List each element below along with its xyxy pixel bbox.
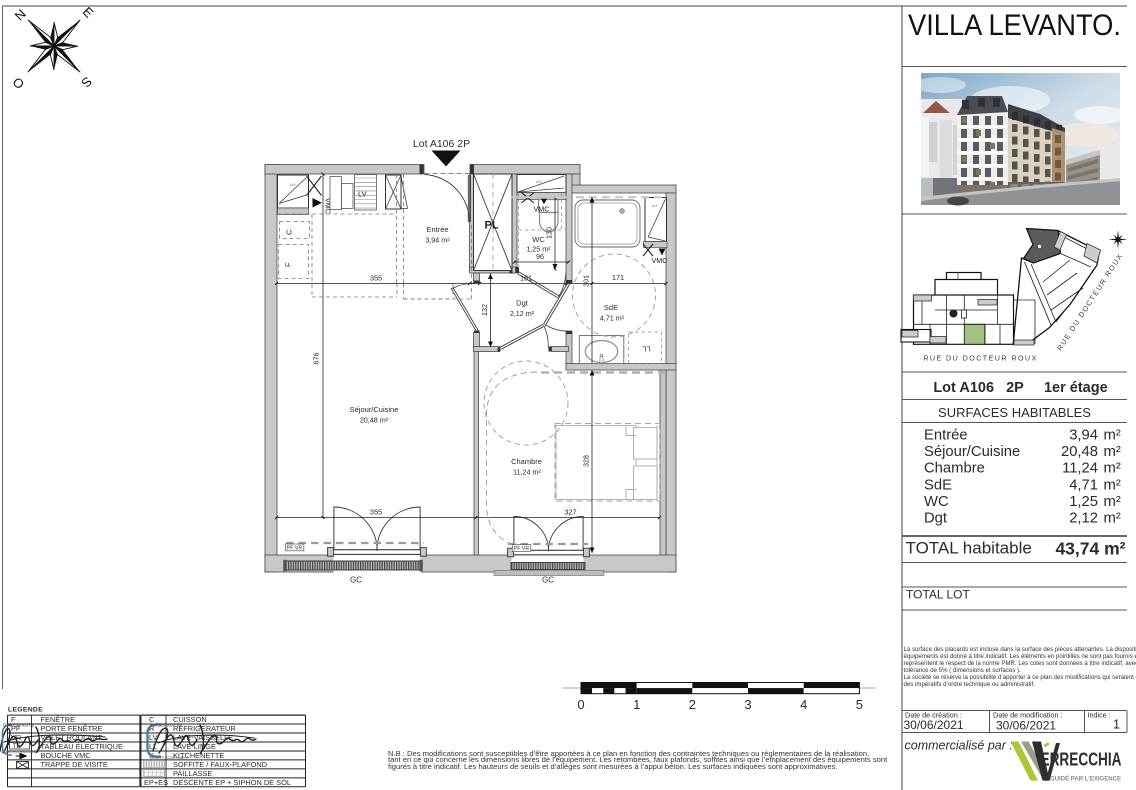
svg-text:m²: m² — [1104, 461, 1121, 477]
svg-text:LL: LL — [642, 345, 650, 354]
svg-text:RUE DU DOCTEUR ROUX: RUE DU DOCTEUR ROUX — [923, 354, 1037, 363]
svg-text:O: O — [9, 74, 27, 92]
svg-text:171: 171 — [612, 273, 624, 282]
svg-text:161: 161 — [520, 274, 532, 283]
svg-text:30/06/2021: 30/06/2021 — [904, 718, 964, 732]
svg-text:Lot A106 2P: Lot A106 2P — [413, 138, 470, 150]
svg-text:ERRECCHIA: ERRECCHIA — [1041, 749, 1122, 770]
svg-text:PL: PL — [485, 220, 499, 232]
svg-text:A/A: A/A — [652, 204, 658, 208]
svg-text:EA8B7E4199D245B...: EA8B7E4199D245B... — [1, 750, 39, 754]
svg-text:Chambre: Chambre — [924, 461, 985, 477]
svg-text:WC: WC — [924, 494, 949, 510]
svg-text:N: N — [12, 6, 29, 23]
svg-text:LV: LV — [358, 190, 367, 199]
svg-text:SdE: SdE — [924, 477, 952, 493]
svg-text:96: 96 — [536, 252, 544, 261]
svg-text:328: 328 — [582, 455, 591, 467]
svg-text:4: 4 — [800, 697, 807, 712]
svg-text:2,12: 2,12 — [1069, 511, 1098, 527]
svg-text:Séjour/Cuisine: Séjour/Cuisine — [350, 405, 399, 414]
svg-text:SURFACES HABITABLES: SURFACES HABITABLES — [938, 405, 1091, 420]
svg-text:TOTAL habitable: TOTAL habitable — [906, 539, 1032, 558]
svg-text:C: C — [285, 229, 294, 235]
svg-text:GC: GC — [350, 576, 362, 585]
svg-text:301: 301 — [582, 275, 591, 287]
svg-text:A/A: A/A — [290, 183, 296, 187]
svg-text:m²: m² — [1104, 428, 1121, 444]
svg-text:4C3DFF3C26294AB...: 4C3DFF3C26294AB... — [150, 756, 188, 760]
svg-text:130: 130 — [545, 227, 554, 239]
svg-text:S: S — [78, 74, 95, 91]
svg-text:Chambre: Chambre — [511, 457, 542, 466]
svg-text:PF VR: PF VR — [287, 545, 303, 551]
svg-text:DocuSigned by:: DocuSigned by: — [3, 723, 35, 728]
svg-text:5: 5 — [856, 697, 863, 712]
svg-text:m²: m² — [1104, 444, 1121, 460]
svg-text:2: 2 — [689, 697, 696, 712]
svg-text:132: 132 — [480, 304, 489, 316]
svg-text:0: 0 — [577, 697, 584, 712]
svg-text:3,94: 3,94 — [1069, 428, 1098, 444]
svg-text:4,71 m²: 4,71 m² — [600, 314, 625, 323]
svg-text:355: 355 — [370, 508, 382, 517]
svg-text:GUIDÉ PAR L'EXIGENCE: GUIDÉ PAR L'EXIGENCE — [1050, 775, 1121, 783]
svg-text:WC: WC — [532, 235, 545, 244]
svg-text:Dgt: Dgt — [924, 511, 947, 527]
svg-text:Séjour/Cuisine: Séjour/Cuisine — [924, 444, 1020, 460]
svg-text:Entrée: Entrée — [924, 428, 968, 444]
svg-text:FENÊTRE: FENÊTRE — [41, 715, 76, 724]
svg-text:EP+ES: EP+ES — [144, 778, 168, 787]
svg-text:PORTE FENÊTRE: PORTE FENÊTRE — [41, 724, 103, 733]
svg-text:20,48: 20,48 — [1061, 444, 1098, 460]
svg-text:DESCENTE EP + SIPHON DE SOL: DESCENTE EP + SIPHON DE SOL — [173, 778, 291, 787]
svg-text:327: 327 — [564, 508, 576, 517]
svg-text:LEGENDE: LEGENDE — [8, 707, 43, 714]
svg-text:SdE: SdE — [604, 303, 618, 312]
svg-text:A/A: A/A — [536, 180, 542, 184]
svg-text:355: 355 — [370, 274, 382, 283]
svg-text:TOTAL LOT: TOTAL LOT — [906, 588, 970, 602]
svg-text:Lot A106 2P 1er étage: Lot A106 2P 1er étage — [933, 380, 1107, 396]
svg-text:Indice :: Indice : — [1088, 711, 1111, 720]
svg-text:Entrée: Entrée — [426, 225, 448, 234]
svg-text:11,24: 11,24 — [1062, 461, 1098, 477]
svg-text:30/06/2021: 30/06/2021 — [996, 719, 1056, 733]
svg-text:DocuSigned by:: DocuSigned by: — [151, 723, 183, 728]
svg-text:m²: m² — [1104, 511, 1121, 527]
svg-text:1: 1 — [1113, 718, 1120, 732]
svg-text:GC: GC — [542, 576, 554, 585]
svg-text:20,48 m²: 20,48 m² — [360, 416, 389, 425]
svg-text:PAILLASSE: PAILLASSE — [173, 769, 212, 778]
svg-text:43,74 m²: 43,74 m² — [1055, 539, 1125, 559]
svg-text:Dgt: Dgt — [516, 299, 529, 308]
svg-text:PF VR: PF VR — [514, 546, 530, 552]
svg-text:m²: m² — [1104, 494, 1121, 510]
svg-text:1: 1 — [633, 697, 640, 712]
svg-text:1,25: 1,25 — [1069, 494, 1098, 510]
svg-text:3,94 m²: 3,94 m² — [425, 236, 450, 245]
svg-text:VMC: VMC — [652, 256, 668, 265]
svg-text:676: 676 — [312, 353, 321, 365]
svg-text:VMC: VMC — [534, 205, 550, 214]
svg-text:commercialisé par :: commercialisé par : — [905, 739, 1013, 753]
svg-text:2,12 m²: 2,12 m² — [510, 309, 535, 318]
svg-text:F: F — [284, 262, 293, 267]
svg-text:m²: m² — [1104, 477, 1121, 493]
svg-text:VILLA LEVANTO.: VILLA LEVANTO. — [908, 9, 1121, 42]
svg-text:SOFFITE / FAUX-PLAFOND: SOFFITE / FAUX-PLAFOND — [173, 760, 267, 769]
svg-text:TRAPPE DE VISITE: TRAPPE DE VISITE — [41, 760, 108, 769]
svg-text:BOUCHE VMC: BOUCHE VMC — [41, 751, 92, 760]
svg-text:4,71: 4,71 — [1069, 477, 1098, 493]
svg-text:3: 3 — [744, 697, 751, 712]
svg-text:11,24 m²: 11,24 m² — [513, 468, 541, 477]
